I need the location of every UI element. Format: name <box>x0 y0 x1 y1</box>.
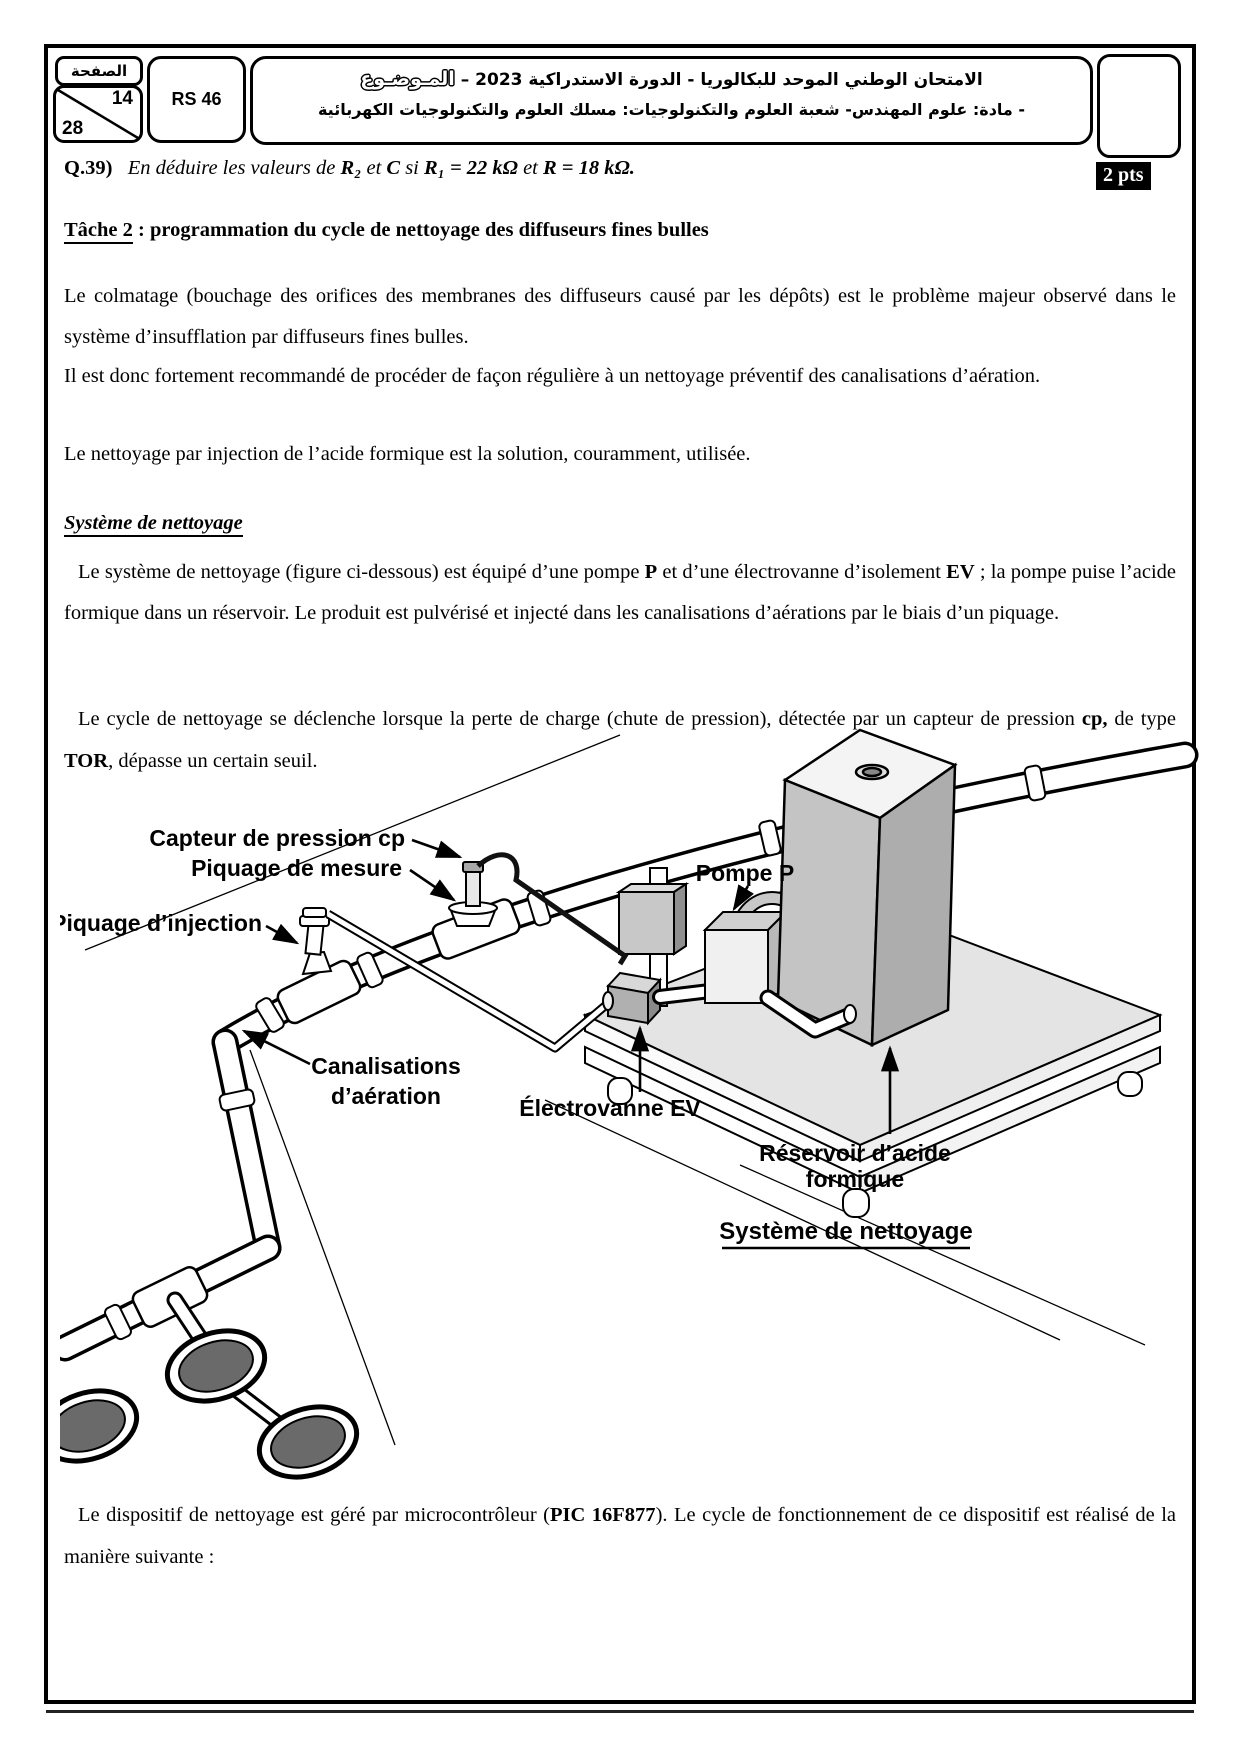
paragraph-colmatage: Le colmatage (bouchage des orifices des … <box>64 276 1176 358</box>
task2-heading: Tâche 2 : programmation du cycle de nett… <box>64 219 709 242</box>
label-piquage-mesure: Piquage de mesure <box>191 855 402 881</box>
fine-bubble-diffusers <box>60 1319 366 1480</box>
page-number: 14 <box>112 88 133 110</box>
label-canalisations-2: d’aération <box>331 1083 441 1109</box>
control-box <box>619 884 686 954</box>
arrow-to-measuring-tap <box>410 870 454 900</box>
suction-pipe <box>660 991 710 997</box>
task2-title: Tâche 2 <box>64 219 133 244</box>
skid-foot <box>1118 1072 1142 1096</box>
label-canalisations-1: Canalisations <box>311 1053 461 1079</box>
cleaning-system-diagram: Capteur de pression cp Piquage de mesure… <box>60 700 1200 1480</box>
diffuser <box>60 1379 146 1473</box>
exam-title-box: الامتحان الوطني الموحد للبكالوريا - الدو… <box>250 56 1093 145</box>
exam-reference: RS 46 <box>171 89 221 110</box>
acid-tank <box>778 730 955 1045</box>
label-reservoir-1: Réservoir d’acide <box>759 1140 951 1166</box>
paragraph-acide-formique: Le nettoyage par injection de l’acide fo… <box>64 434 1176 475</box>
label-piquage-injection: Piquage d’injection <box>60 910 262 936</box>
points-badge: 2 pts <box>1096 162 1151 190</box>
label-electrovanne: Électrovanne EV <box>519 1094 701 1121</box>
page-border-shadow-line <box>46 1710 1194 1713</box>
arrow-to-sensor <box>412 840 460 857</box>
exam-title-line1: الامتحان الوطني الموحد للبكالوريا - الدو… <box>253 68 1090 90</box>
page-label-box: الصفحة <box>55 56 143 86</box>
question-39: Q.39) En déduire les valeurs de R₂ et C … <box>64 157 1084 180</box>
page-total: 28 <box>62 118 83 140</box>
page-label: الصفحة <box>71 62 127 80</box>
pressure-sensor-assembly <box>430 862 521 961</box>
paragraph-microcontroleur: Le dispositif de nettoyage est géré par … <box>64 1494 1176 1578</box>
paragraph-recommandation: Il est donc fortement recommandé de proc… <box>64 356 1176 397</box>
exam-title-line2: - مادة: علوم المهندس- شعبة العلوم والتكن… <box>253 100 1090 119</box>
pump-body <box>705 930 768 1003</box>
page-number-box: 14 28 <box>53 85 143 143</box>
arrow-to-injection-tap <box>266 926 297 943</box>
skid-foot <box>843 1189 869 1217</box>
paragraph-systeme: Le système de nettoyage (figure ci-desso… <box>64 552 1176 634</box>
label-reservoir-2: formique <box>806 1166 904 1192</box>
system-section-heading: Système de nettoyage <box>64 512 243 535</box>
electrovalve <box>603 973 660 1023</box>
label-capteur: Capteur de pression cp <box>149 825 405 851</box>
sensor-body <box>466 870 480 906</box>
header-empty-box <box>1097 54 1181 158</box>
question-number: Q.39) <box>64 157 112 179</box>
exam-reference-box: RS 46 <box>147 56 246 143</box>
label-pompe: Pompe P <box>696 860 794 886</box>
diagram-caption: Système de nettoyage <box>719 1218 972 1245</box>
exam-subject-word: المـوضـوع <box>360 68 455 90</box>
